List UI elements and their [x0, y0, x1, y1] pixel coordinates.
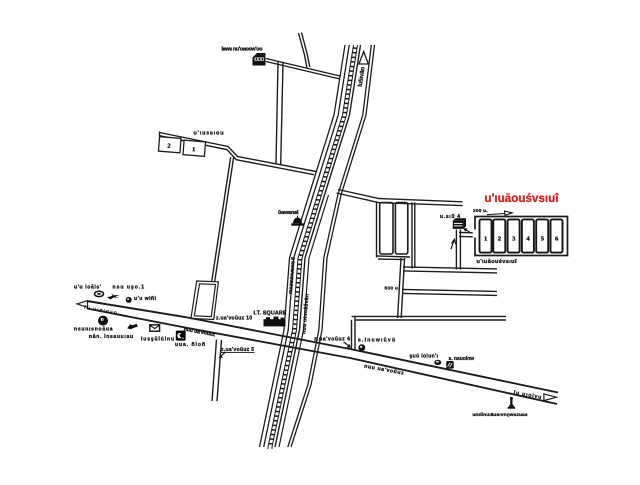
svg-text:s. nsuoinw: s. nsuoinw [449, 356, 475, 362]
svg-text:2: 2 [167, 143, 171, 150]
svg-text:1: 1 [484, 236, 487, 243]
svg-text:laws nu'oaoow'oo: laws nu'oaoow'oo [222, 47, 264, 53]
svg-text:800 u.: 800 u. [385, 286, 400, 291]
svg-text:nsunısnoāua: nsunısnoāua [74, 327, 113, 333]
svg-text:1: 1 [192, 146, 196, 153]
svg-text:u'ıuāouśvsıuî: u'ıuāouśvsıuî [485, 193, 560, 205]
svg-text:nsu uşo.1: nsu uşo.1 [113, 285, 145, 291]
svg-text:lusşūīúlnu: lusşūīúlnu [141, 337, 174, 343]
svg-text:I.T. SQUARE: I.T. SQUARE [254, 311, 287, 317]
svg-text:unıõnuıāusıvnņwszuаs: unıõnuıāusıvnņwszuаs [473, 412, 528, 418]
svg-text:u'u ioāls': u'u ioāls' [74, 285, 101, 291]
svg-text:z.ua'voūuz 10: z.ua'voūuz 10 [216, 315, 252, 321]
svg-text:şuú lolun'ı: şuú lolun'ı [410, 354, 439, 360]
svg-text:z.ua'voūuz 6: z.ua'voūuz 6 [314, 337, 350, 343]
svg-text:u'ıuāouśvsıuî: u'ıuāouśvsıuî [477, 259, 517, 265]
svg-text:nān. lnsаuuıаu: nān. lnsаuuıаu [89, 334, 133, 340]
svg-text:u'ıuзsıou: u'ıuзsıou [194, 131, 224, 137]
svg-text:õawanal: õawanal [278, 210, 299, 216]
svg-text:u'u wiñi: u'u wiñi [134, 296, 157, 302]
svg-text:200 u.: 200 u. [473, 208, 488, 213]
svg-text:uua. ñloñ: uua. ñloñ [175, 342, 205, 348]
